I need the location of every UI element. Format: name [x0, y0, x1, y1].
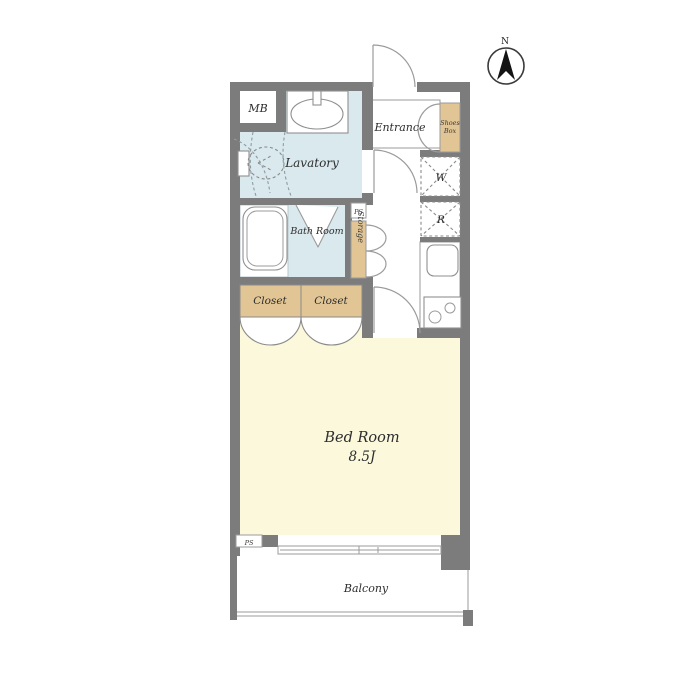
compass-north-label: N [501, 37, 509, 47]
entrance-door [373, 45, 415, 87]
wall-segment [420, 196, 460, 202]
stove [424, 297, 461, 328]
bathroom-label: Bath Room [289, 226, 343, 237]
wall-segment [441, 535, 470, 570]
wall-segment [362, 277, 373, 338]
wall-segment [417, 328, 462, 338]
bathtub-outer [243, 207, 287, 270]
wall-segment [230, 82, 373, 91]
mb-label: MB [247, 102, 267, 115]
bedroom-door [374, 287, 420, 333]
wall-segment [362, 82, 373, 150]
floor-plan-canvas: N MB Lavatory Entrance Shoes Box W R PS … [0, 0, 680, 676]
bedroom-label: Bed Room [323, 430, 399, 446]
floor-plan-drawing: N MB Lavatory Entrance Shoes Box W R PS … [0, 0, 680, 676]
bedroom-floor [240, 317, 462, 535]
balcony-structure [237, 570, 473, 626]
sink-faucet [313, 91, 321, 105]
toilet-tank [238, 151, 249, 176]
north-arrow-icon [497, 49, 515, 80]
wall-segment [420, 237, 460, 242]
lavatory-door [374, 150, 417, 193]
storage-bifold-door [366, 225, 386, 277]
kitchen-sink [427, 245, 458, 276]
wall-segment [230, 198, 363, 205]
wall-segment [230, 556, 237, 620]
wall-segment [230, 277, 363, 285]
entrance-label: Entrance [373, 121, 426, 134]
bedroom-size-label: 8.5J [349, 449, 377, 465]
balcony-rail-post [463, 610, 473, 626]
ps-lower-label: PS [244, 539, 254, 547]
wall-segment [230, 123, 286, 132]
lavatory-label: Lavatory [284, 156, 339, 170]
shoes-box-label-line2: Box [443, 127, 457, 135]
shoes-box-label-line1: Shoes [440, 119, 460, 127]
fridge-label: R [436, 214, 445, 226]
bathtub [243, 207, 287, 270]
washer-label: W [436, 172, 448, 184]
lavatory-sink [287, 91, 348, 133]
closet-right-label: Closet [314, 295, 348, 307]
kitchen-fixtures [424, 245, 461, 328]
compass: N [488, 37, 524, 84]
balcony-label: Balcony [343, 582, 389, 595]
storage-label: Storage [356, 211, 365, 243]
closet-left-label: Closet [253, 295, 287, 307]
balcony-window [278, 546, 441, 554]
